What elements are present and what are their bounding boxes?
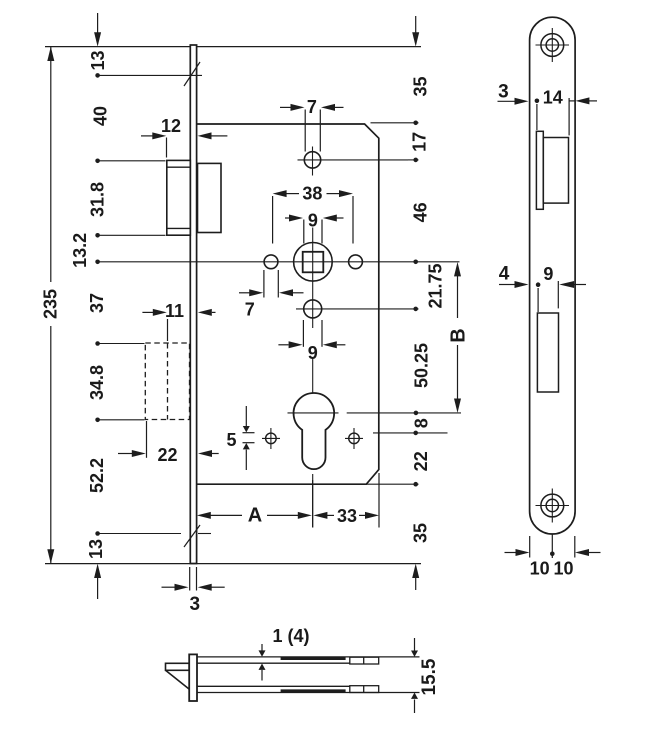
svg-text:5: 5 — [226, 430, 236, 450]
svg-text:13: 13 — [88, 50, 108, 70]
svg-text:3: 3 — [190, 594, 201, 615]
svg-text:9: 9 — [308, 343, 318, 363]
svg-text:50.25: 50.25 — [412, 343, 432, 388]
svg-text:3: 3 — [498, 81, 509, 102]
svg-text:38: 38 — [302, 184, 322, 204]
svg-text:34.8: 34.8 — [87, 365, 107, 400]
svg-text:7: 7 — [245, 300, 255, 320]
svg-text:B: B — [448, 328, 470, 342]
svg-text:31.8: 31.8 — [88, 182, 108, 217]
svg-text:33: 33 — [337, 506, 357, 526]
svg-text:235: 235 — [41, 289, 61, 319]
svg-text:22: 22 — [157, 445, 177, 465]
svg-text:12: 12 — [161, 116, 181, 136]
svg-text:21.75: 21.75 — [426, 263, 446, 308]
svg-text:22: 22 — [411, 451, 431, 471]
svg-text:4: 4 — [499, 264, 510, 285]
svg-text:A: A — [248, 504, 262, 526]
svg-text:1 (4): 1 (4) — [272, 626, 309, 646]
svg-text:17: 17 — [410, 132, 430, 152]
svg-text:15.5: 15.5 — [419, 658, 440, 695]
svg-text:46: 46 — [410, 202, 430, 222]
svg-text:10: 10 — [553, 559, 573, 579]
svg-text:9: 9 — [543, 264, 553, 284]
svg-text:14: 14 — [543, 87, 563, 107]
svg-text:13: 13 — [86, 539, 106, 559]
svg-text:11: 11 — [165, 301, 184, 321]
svg-text:13.2: 13.2 — [70, 233, 90, 268]
svg-text:52.2: 52.2 — [87, 458, 107, 493]
svg-text:7: 7 — [307, 97, 317, 117]
svg-text:37: 37 — [87, 293, 107, 313]
svg-text:10: 10 — [530, 559, 550, 579]
svg-text:9: 9 — [308, 210, 318, 230]
svg-text:40: 40 — [91, 106, 111, 126]
svg-text:35: 35 — [410, 523, 430, 543]
svg-text:8: 8 — [411, 418, 431, 428]
svg-text:35: 35 — [411, 76, 431, 96]
